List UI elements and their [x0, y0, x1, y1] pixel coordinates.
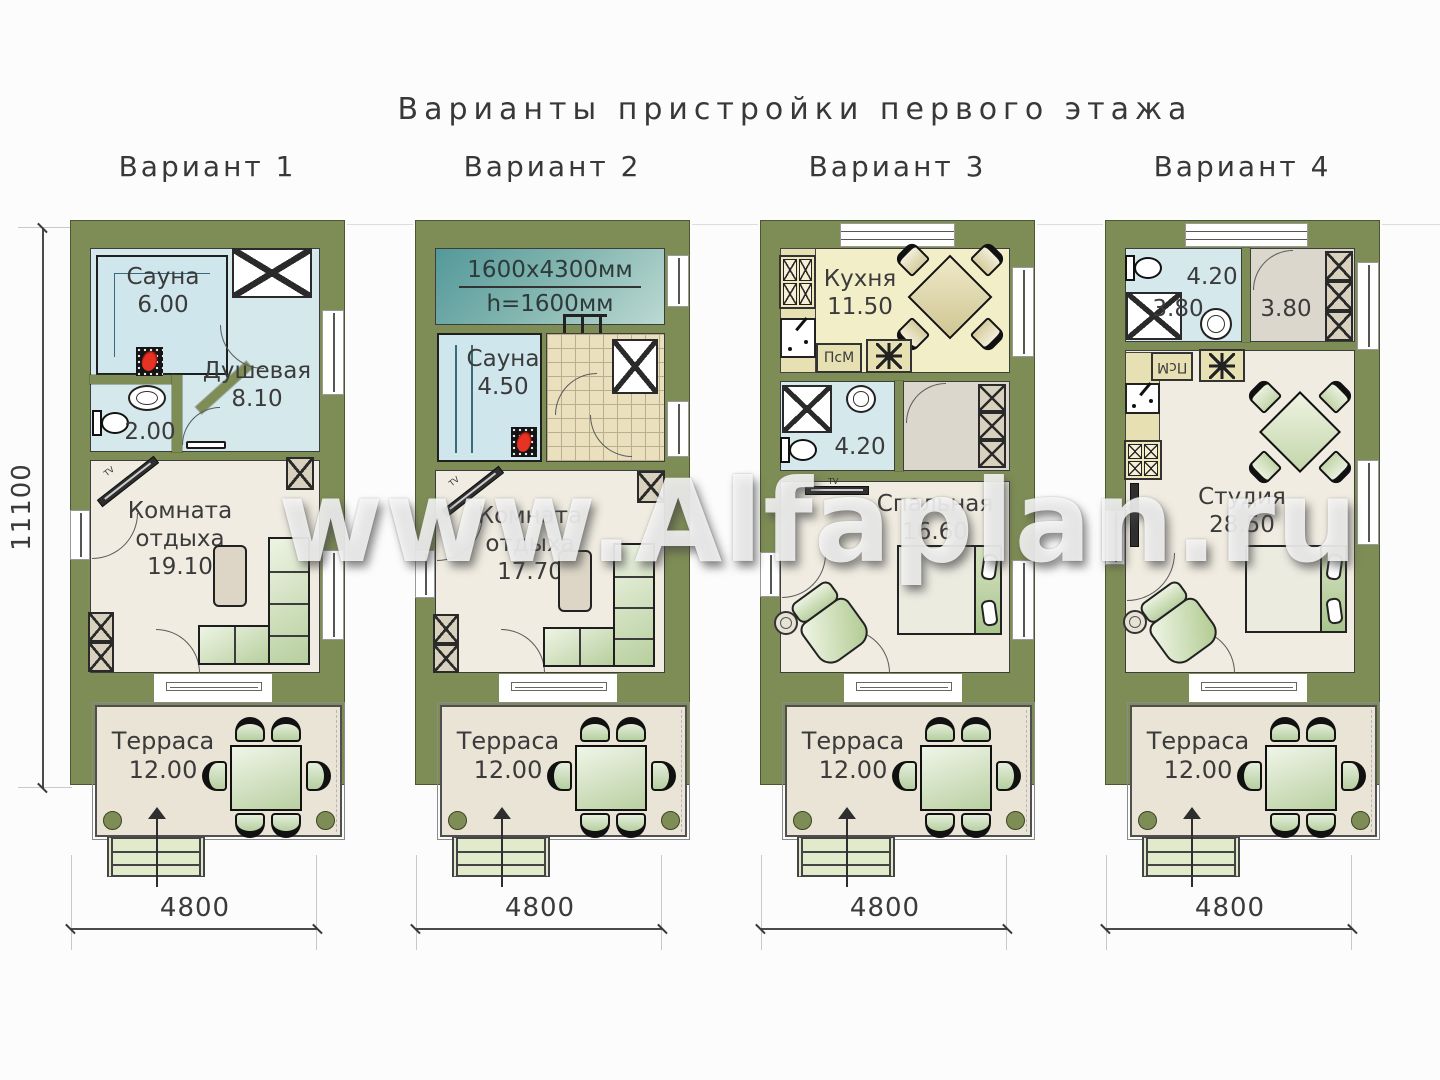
entrance-arrow-icon — [148, 807, 166, 819]
deco-dash — [336, 710, 337, 832]
room-area: 4.20 — [815, 433, 905, 461]
window-icon — [1357, 460, 1379, 545]
window-icon — [322, 550, 344, 640]
room-area: 4.50 — [433, 373, 573, 401]
tv-screen — [811, 489, 863, 491]
deco-dot — [1132, 404, 1136, 408]
chair-icon — [202, 761, 227, 791]
width-dimension: 4800 — [110, 893, 280, 923]
tv-label: TV — [828, 477, 838, 486]
wardrobe-icon — [286, 457, 314, 490]
dishwasher: ПсМ — [816, 343, 862, 373]
toilet-bowl — [789, 439, 817, 461]
height-dimension: 11100 — [7, 452, 37, 562]
room-area: 28.50 — [1172, 511, 1312, 539]
chair-icon — [1306, 717, 1336, 742]
toilet-bowl — [1134, 257, 1162, 279]
window-glass — [333, 313, 335, 392]
room-label-kitchen: Кухня 11.50 — [790, 265, 930, 321]
room-label-bedroom: Спальная 16.60 — [865, 490, 1005, 546]
wardrobe-icon — [433, 644, 459, 673]
kitchen-sink-icon — [780, 318, 816, 358]
room-area: 2.00 — [100, 418, 200, 446]
terrace: Терраса 12.00 — [440, 705, 687, 837]
deco-dash — [1371, 710, 1372, 832]
entrance-arrow-line — [501, 819, 503, 887]
chair-icon — [547, 761, 572, 791]
deco-dash — [1026, 710, 1027, 832]
deco-line — [1205, 687, 1293, 688]
sauna-heater-icon — [136, 347, 163, 376]
terrace-table — [575, 745, 647, 811]
sink-icon — [1200, 308, 1232, 340]
window-glass — [1186, 231, 1307, 240]
dishwasher-label: ПсМ — [824, 350, 854, 366]
loft-note: 1600x4300мм h=1600мм — [459, 257, 640, 317]
extension-line — [661, 855, 662, 950]
chair-icon — [1237, 761, 1262, 791]
extension-line — [71, 855, 72, 950]
window-icon — [1357, 262, 1379, 350]
width-dimension: 4800 — [800, 893, 970, 923]
entrance-arrow-line — [1191, 819, 1193, 887]
window-icon — [667, 255, 689, 307]
window-icon — [1012, 267, 1034, 357]
window-glass — [1115, 513, 1117, 562]
room-name: Сауна — [433, 345, 573, 373]
loft-note-size: 1600x4300мм — [459, 257, 640, 288]
terrace-table — [230, 745, 302, 811]
coffee-table — [213, 545, 247, 607]
deco-line — [615, 576, 653, 578]
window-glass — [425, 553, 427, 595]
window-icon — [667, 401, 689, 457]
window-glass — [1368, 463, 1370, 542]
dimension-line — [1105, 928, 1353, 930]
entrance-arrow-line — [156, 819, 158, 887]
post-icon — [1006, 811, 1025, 830]
room-name: Студия — [1172, 483, 1312, 511]
deco-dot — [788, 347, 792, 351]
terrace: Терраса 12.00 — [95, 705, 342, 837]
variant-3-title: Вариант 3 — [760, 150, 1035, 183]
dimension-line — [415, 928, 663, 930]
entrance-arrow-icon — [493, 807, 511, 819]
terrace: Терраса 12.00 — [1130, 705, 1377, 837]
page-title: Варианты пристройки первого этажа — [0, 92, 1440, 127]
deco-line — [579, 629, 581, 665]
post-icon — [793, 811, 812, 830]
window-icon — [1185, 223, 1308, 247]
loft-note-height: h=1600мм — [459, 288, 640, 317]
deco-line — [170, 687, 258, 688]
room-label-wc: 2.00 — [100, 418, 200, 446]
room-area: 3.80 — [1241, 295, 1331, 323]
faucet-icon — [1139, 382, 1151, 396]
extension-line — [1351, 855, 1352, 950]
room-area: 6.00 — [88, 291, 238, 319]
extension-line — [18, 787, 72, 788]
sink-icon — [846, 385, 876, 413]
variant-2-title: Вариант 2 — [415, 150, 690, 183]
chair-icon — [616, 717, 646, 742]
dishwasher: ПсМ — [1151, 352, 1193, 381]
room-label-sauna: Сауна 6.00 — [88, 263, 238, 319]
window-glass — [841, 231, 954, 240]
kitchen-sink-icon — [1125, 383, 1160, 414]
deco-line — [270, 635, 308, 637]
window-glass — [80, 513, 82, 557]
post-icon — [1351, 811, 1370, 830]
post-icon — [448, 811, 467, 830]
room-area: 4.20 — [1167, 263, 1257, 291]
room-label-studio: Студия 28.50 — [1172, 483, 1312, 539]
sofa-horizontal — [543, 627, 615, 667]
dimension-line — [42, 228, 44, 788]
dishwasher-label: ПсМ — [1157, 359, 1187, 375]
deco-line — [234, 627, 236, 663]
room-name: Терраса — [452, 727, 564, 756]
plan-variant-3: ПсМ Кухня 11.50 4.20 TV Спальн — [760, 215, 1065, 975]
room-name: Терраса — [107, 727, 219, 756]
room-name: Спальная — [865, 490, 1005, 518]
deco-line — [515, 687, 603, 688]
window-glass — [1023, 270, 1025, 354]
chair-icon — [892, 761, 917, 791]
chair-icon — [235, 717, 265, 742]
extension-line — [316, 855, 317, 950]
coffee-table — [558, 550, 592, 612]
window-glass — [1368, 265, 1370, 347]
deco-line — [615, 638, 653, 640]
window-glass — [1023, 563, 1025, 637]
floor-plan-sheet: Варианты пристройки первого этажа Вариан… — [0, 0, 1440, 1080]
toilet-icon — [780, 437, 817, 463]
deco-dot — [1149, 399, 1153, 403]
deco-dash — [681, 710, 682, 832]
deco-line — [270, 603, 308, 605]
sliding-door — [1201, 682, 1297, 691]
post-icon — [103, 811, 122, 830]
extension-line — [761, 855, 762, 950]
bed — [897, 545, 1002, 635]
chair-icon — [1270, 717, 1300, 742]
window-icon — [1012, 560, 1034, 640]
room-name: Кухня — [790, 265, 930, 293]
room-label-sauna: Сауна 4.50 — [433, 345, 573, 401]
wardrobe-icon — [433, 614, 459, 644]
window-glass — [678, 404, 680, 454]
burner-icon — [1128, 461, 1142, 476]
toilet-icon — [1125, 255, 1162, 281]
burner-icon — [1144, 461, 1158, 476]
dimension-line — [760, 928, 1008, 930]
window-icon — [840, 223, 955, 247]
wardrobe-icon — [978, 384, 1006, 412]
wardrobe-icon — [88, 612, 114, 642]
window-glass — [770, 555, 772, 594]
sliding-door — [166, 682, 262, 691]
wardrobe-icon — [978, 412, 1006, 440]
room-area: 8.10 — [187, 385, 327, 413]
room-name: Сауна — [88, 263, 238, 291]
extension-line — [1106, 855, 1107, 950]
room-label-bathroom: 4.20 — [815, 433, 905, 461]
loft-zone: 1600x4300мм h=1600мм — [435, 248, 665, 325]
room-name: Терраса — [1142, 727, 1254, 756]
chair-icon — [961, 717, 991, 742]
variant-4-title: Вариант 4 — [1105, 150, 1380, 183]
extension-line — [416, 855, 417, 950]
room-label-shower: Душевая 8.10 — [187, 357, 327, 413]
partition-wall — [90, 375, 174, 384]
sofa-horizontal — [198, 625, 270, 665]
sofa-vertical — [613, 543, 655, 667]
window-glass — [333, 553, 335, 637]
stove-icon — [1124, 440, 1162, 480]
post-icon — [1138, 811, 1157, 830]
width-dimension: 4800 — [1145, 893, 1315, 923]
window-icon — [415, 550, 435, 598]
post-icon — [316, 811, 335, 830]
chair-icon — [271, 717, 301, 742]
washer-icon — [866, 339, 912, 373]
room-label-hall: 3.80 — [1241, 295, 1331, 323]
terrace-table — [920, 745, 992, 811]
sink-icon — [128, 385, 166, 411]
post-icon — [661, 811, 680, 830]
variant-1-title: Вариант 1 — [70, 150, 345, 183]
entrance-arrow-line — [846, 819, 848, 887]
bed — [1245, 545, 1347, 633]
terrace-table — [1265, 745, 1337, 811]
chimney-icon — [232, 248, 312, 298]
extension-line — [18, 227, 72, 228]
terrace: Терраса 12.00 — [785, 705, 1032, 837]
plan-variant-1: Сауна 6.00 Душевая 8.10 2.00 TV Комната … — [70, 215, 375, 975]
tv-icon — [805, 486, 869, 495]
entrance-arrow-icon — [1183, 807, 1201, 819]
window-glass — [678, 258, 680, 304]
dimension-line — [70, 928, 318, 930]
wardrobe-icon — [1325, 251, 1353, 281]
window-icon — [760, 552, 780, 597]
sofa-vertical — [268, 537, 310, 665]
window-icon — [70, 510, 90, 560]
wardrobe-icon — [978, 440, 1006, 468]
room-name: Душевая — [187, 357, 327, 385]
room-area: 16.60 — [865, 518, 1005, 546]
washer-symbol — [1209, 353, 1235, 379]
tv-icon — [1130, 483, 1139, 547]
deco-dot — [804, 340, 808, 344]
burner-icon — [1144, 444, 1158, 459]
width-dimension: 4800 — [455, 893, 625, 923]
burner-icon — [1128, 444, 1142, 459]
shower-cabin-icon — [782, 385, 832, 433]
plan-variant-4: 4.20 3.80 3.80 ПсМ — [1105, 215, 1410, 975]
room-name: Терраса — [797, 727, 909, 756]
plan-variant-2: 1600x4300мм h=1600мм Сауна 4.50 TV Комна… — [415, 215, 720, 975]
shower-cabin-icon — [612, 339, 658, 394]
chair-icon — [580, 717, 610, 742]
washer-icon — [1199, 349, 1245, 382]
room-label-wc: 4.20 — [1167, 263, 1257, 291]
extension-line — [1006, 855, 1007, 950]
entrance-arrow-icon — [838, 807, 856, 819]
deco-line — [270, 571, 308, 573]
chair-icon — [925, 717, 955, 742]
deco-line — [615, 607, 653, 609]
window-icon — [1105, 510, 1125, 565]
sliding-door — [856, 682, 952, 691]
washer-symbol — [876, 343, 902, 369]
wardrobe-icon — [88, 642, 114, 672]
sauna-heater-icon — [511, 427, 537, 457]
sliding-door — [511, 682, 607, 691]
deco-line — [860, 687, 948, 688]
wardrobe-icon — [637, 471, 665, 503]
